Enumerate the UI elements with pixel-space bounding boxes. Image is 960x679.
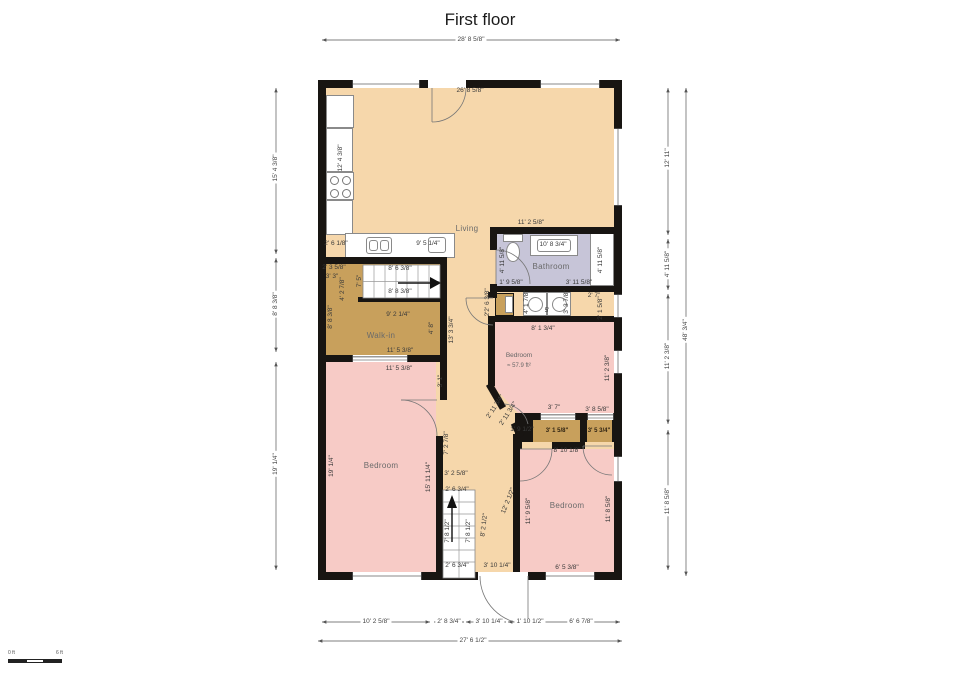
room-label: Bedroom: [550, 502, 585, 510]
dimension-label: 3' 8 5/8": [585, 407, 608, 414]
dimension-label: 4' 8": [429, 322, 436, 335]
dimension-label: 6' 6 7/8": [567, 619, 594, 626]
dimension-label: 3' 5 3/4": [588, 428, 611, 434]
dimension-label: 2' 6 3/4": [445, 563, 468, 570]
dimension-label: 27' 6 1/2": [457, 638, 488, 645]
dimension-label: 15' 4 3/8": [273, 152, 280, 183]
floor-plan-page: First floor: [0, 0, 960, 679]
dimension-label: 9' 2 1/4": [386, 312, 409, 319]
dimension-label: 7' 5": [357, 275, 364, 288]
dimension-label: 12' 4 3/8": [338, 144, 345, 171]
room-label: Bedroom: [506, 353, 532, 360]
dimension-label: 19' 1/4": [273, 451, 280, 477]
scale-bar: 0 ft 6 ft: [8, 650, 68, 666]
dimension-label: 11' 8 5/8": [665, 486, 672, 517]
dimension-label: 28' 8 5/8": [455, 37, 486, 44]
dimension-label: 3' 3 7/8": [564, 290, 571, 313]
dimension-label: 7' 8 1/2": [466, 519, 473, 542]
dimension-label: 2' 6 3/8": [485, 288, 492, 311]
dimension-label: 3' 11 5/8": [566, 280, 593, 287]
dimension-label: 2' 1 5/8": [598, 296, 605, 319]
dimension-label: 4' 11 5/8": [665, 249, 672, 280]
dimension-label: 11' 2 3/8": [665, 341, 672, 372]
dimension-label: 2' 8 3/4": [435, 619, 462, 626]
dimension-label: 12' 11": [665, 146, 672, 169]
dimension-label: 11' 9 5/8": [526, 498, 533, 525]
dimension-label: 3' 3": [326, 274, 339, 281]
dimension-label: 1' 9 5/8": [499, 280, 522, 287]
dimension-label: 11' 2 3/8": [605, 355, 612, 382]
room-label: Bathroom: [532, 263, 569, 271]
dimension-label: 4' 1 7/8": [524, 290, 531, 313]
dimension-label: 4' 11 5/8": [598, 247, 605, 274]
dimension-label: 26' 8 5/8": [456, 88, 483, 95]
dimension-label: 2' 6 1/8": [324, 241, 347, 248]
dimension-label: 1' 9 1/2": [510, 427, 533, 434]
dimension-label: 8' 6 3/8": [388, 266, 411, 273]
scale-end: 6 ft: [56, 650, 63, 656]
dimension-label: 13' 3 3/4": [449, 316, 456, 343]
room-label: Living: [456, 225, 479, 233]
dimension-label: 4' 2 7/8": [340, 277, 347, 300]
plan-annotations: [0, 0, 960, 679]
dimension-label: 3' 7": [548, 405, 561, 412]
dimension-label: 3' 10 1/4": [473, 619, 504, 626]
dimension-label: 8' 10 1/8": [553, 448, 580, 455]
dimension-label: 5': [545, 308, 550, 315]
dimension-label: 8' 8 3/8": [388, 289, 411, 296]
dimension-label: 11' 8 5/8": [606, 496, 613, 523]
dimension-label: 11' 2 5/8": [518, 220, 545, 227]
dimension-label: 7' 2 7/8": [444, 431, 451, 454]
dimension-label: 3' 10 1/4": [483, 563, 510, 570]
dimension-label: 19' 1/4": [329, 455, 336, 477]
dimension-label: 1' 10 1/2": [514, 619, 545, 626]
dimension-label: 8' 1 3/4": [531, 326, 554, 333]
dimension-label: 3' 2 5/8": [444, 471, 467, 478]
dimension-label: 10' 2 5/8": [360, 619, 391, 626]
dimension-label: 3' 1": [438, 375, 445, 388]
dimension-label: 9' 5 1/4": [416, 241, 439, 248]
dimension-label: 8' 8 3/8": [273, 290, 280, 317]
dimension-label: 10' 8 3/4": [539, 242, 566, 249]
scale-start: 0 ft: [8, 650, 15, 656]
dimension-label: 3' 1 5/8": [546, 428, 569, 434]
room-label: Walk-in: [367, 332, 395, 340]
dimension-label: 11' 5 3/8": [386, 366, 413, 373]
dimension-label: 4' 11 5/8": [500, 247, 507, 274]
dimension-label: ≈ 57.9 ft²: [507, 363, 531, 369]
dimension-label: 2': [485, 312, 492, 317]
dimension-label: 48' 3/4": [683, 317, 690, 343]
dimension-label: 8' 8 3/8": [328, 305, 335, 328]
room-label: Bedroom: [364, 462, 399, 470]
dimension-label: 2' 6 3/4": [445, 487, 468, 494]
dimension-label: 2' 3 5/8": [322, 265, 345, 272]
dimension-label: 11' 5 3/8": [387, 348, 414, 355]
dimension-label: 7' 8 1/2": [445, 519, 452, 542]
dimension-label: 6' 5 3/8": [555, 565, 578, 572]
dimension-label: 15' 11 1/4": [426, 462, 433, 492]
